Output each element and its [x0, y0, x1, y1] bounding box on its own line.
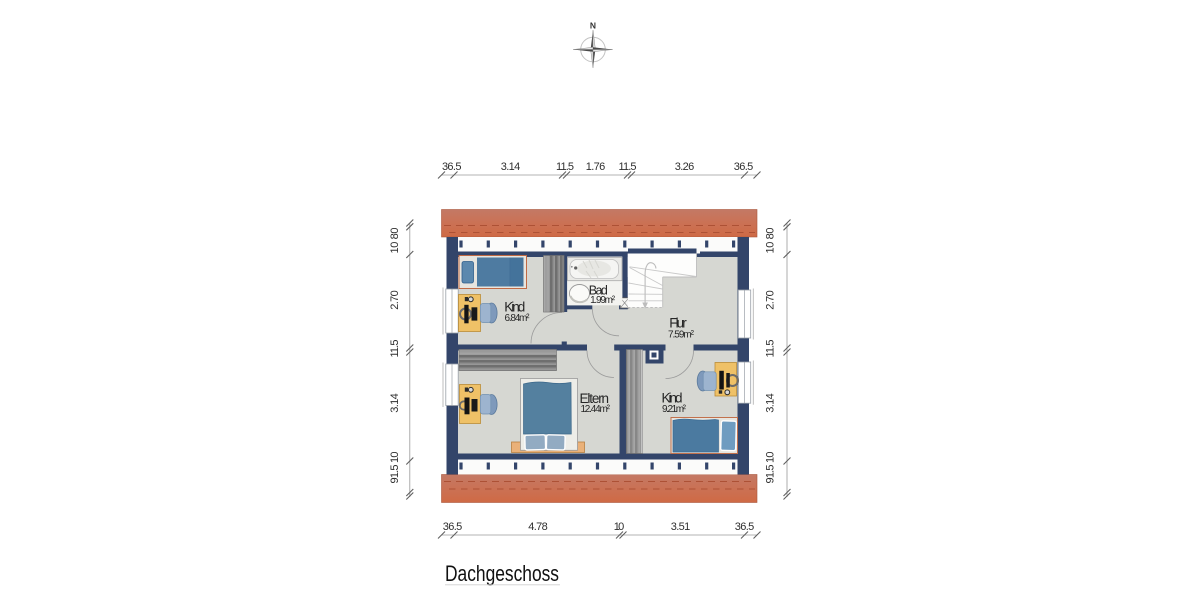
svg-text:3.14: 3.14: [765, 393, 777, 413]
svg-text:36.5: 36.5: [734, 161, 754, 173]
svg-text:91.5 10: 91.5 10: [389, 452, 401, 484]
svg-text:10 80: 10 80: [389, 228, 401, 254]
svg-text:36.5: 36.5: [735, 521, 755, 533]
svg-text:Flur: Flur: [669, 316, 687, 331]
svg-text:3.26: 3.26: [675, 161, 695, 173]
svg-text:11.5: 11.5: [765, 340, 777, 358]
svg-text:3.14: 3.14: [501, 161, 521, 173]
svg-text:Dachgeschoss: Dachgeschoss: [445, 561, 559, 586]
svg-text:11.5: 11.5: [389, 340, 401, 358]
svg-text:1.99m²: 1.99m²: [590, 295, 616, 306]
svg-text:36.5: 36.5: [443, 521, 463, 533]
svg-text:N: N: [590, 21, 596, 31]
svg-text:91.5 10: 91.5 10: [765, 452, 777, 484]
svg-text:2.70: 2.70: [765, 290, 777, 310]
svg-text:1.76: 1.76: [586, 161, 606, 173]
svg-text:3.14: 3.14: [389, 393, 401, 413]
svg-text:6.84m²: 6.84m²: [505, 313, 531, 324]
svg-text:4.78: 4.78: [528, 521, 548, 533]
svg-text:10 80: 10 80: [765, 228, 777, 254]
svg-text:9.21m²: 9.21m²: [662, 404, 687, 415]
svg-text:11.5: 11.5: [556, 161, 574, 173]
svg-text:2.70: 2.70: [389, 290, 401, 310]
svg-text:3.51: 3.51: [671, 521, 691, 533]
svg-text:12.44m²: 12.44m²: [580, 404, 610, 415]
svg-text:11.5: 11.5: [619, 161, 637, 173]
svg-text:36.5: 36.5: [442, 161, 462, 173]
svg-text:7.59m²: 7.59m²: [668, 330, 695, 341]
svg-text:10: 10: [614, 521, 625, 533]
